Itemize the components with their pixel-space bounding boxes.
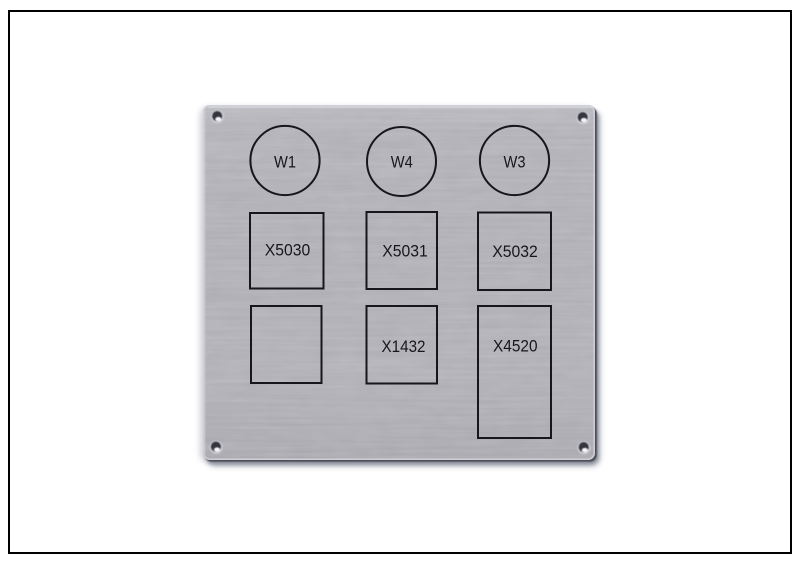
svg-text:W4: W4 (391, 154, 413, 172)
svg-text:W1: W1 (274, 154, 296, 172)
svg-text:X5030: X5030 (265, 242, 311, 260)
svg-text:X5031: X5031 (382, 243, 428, 261)
svg-text:X4520: X4520 (493, 338, 538, 356)
svg-text:W3: W3 (504, 154, 526, 172)
svg-text:X1432: X1432 (382, 338, 426, 356)
svg-text:X5032: X5032 (492, 243, 538, 261)
